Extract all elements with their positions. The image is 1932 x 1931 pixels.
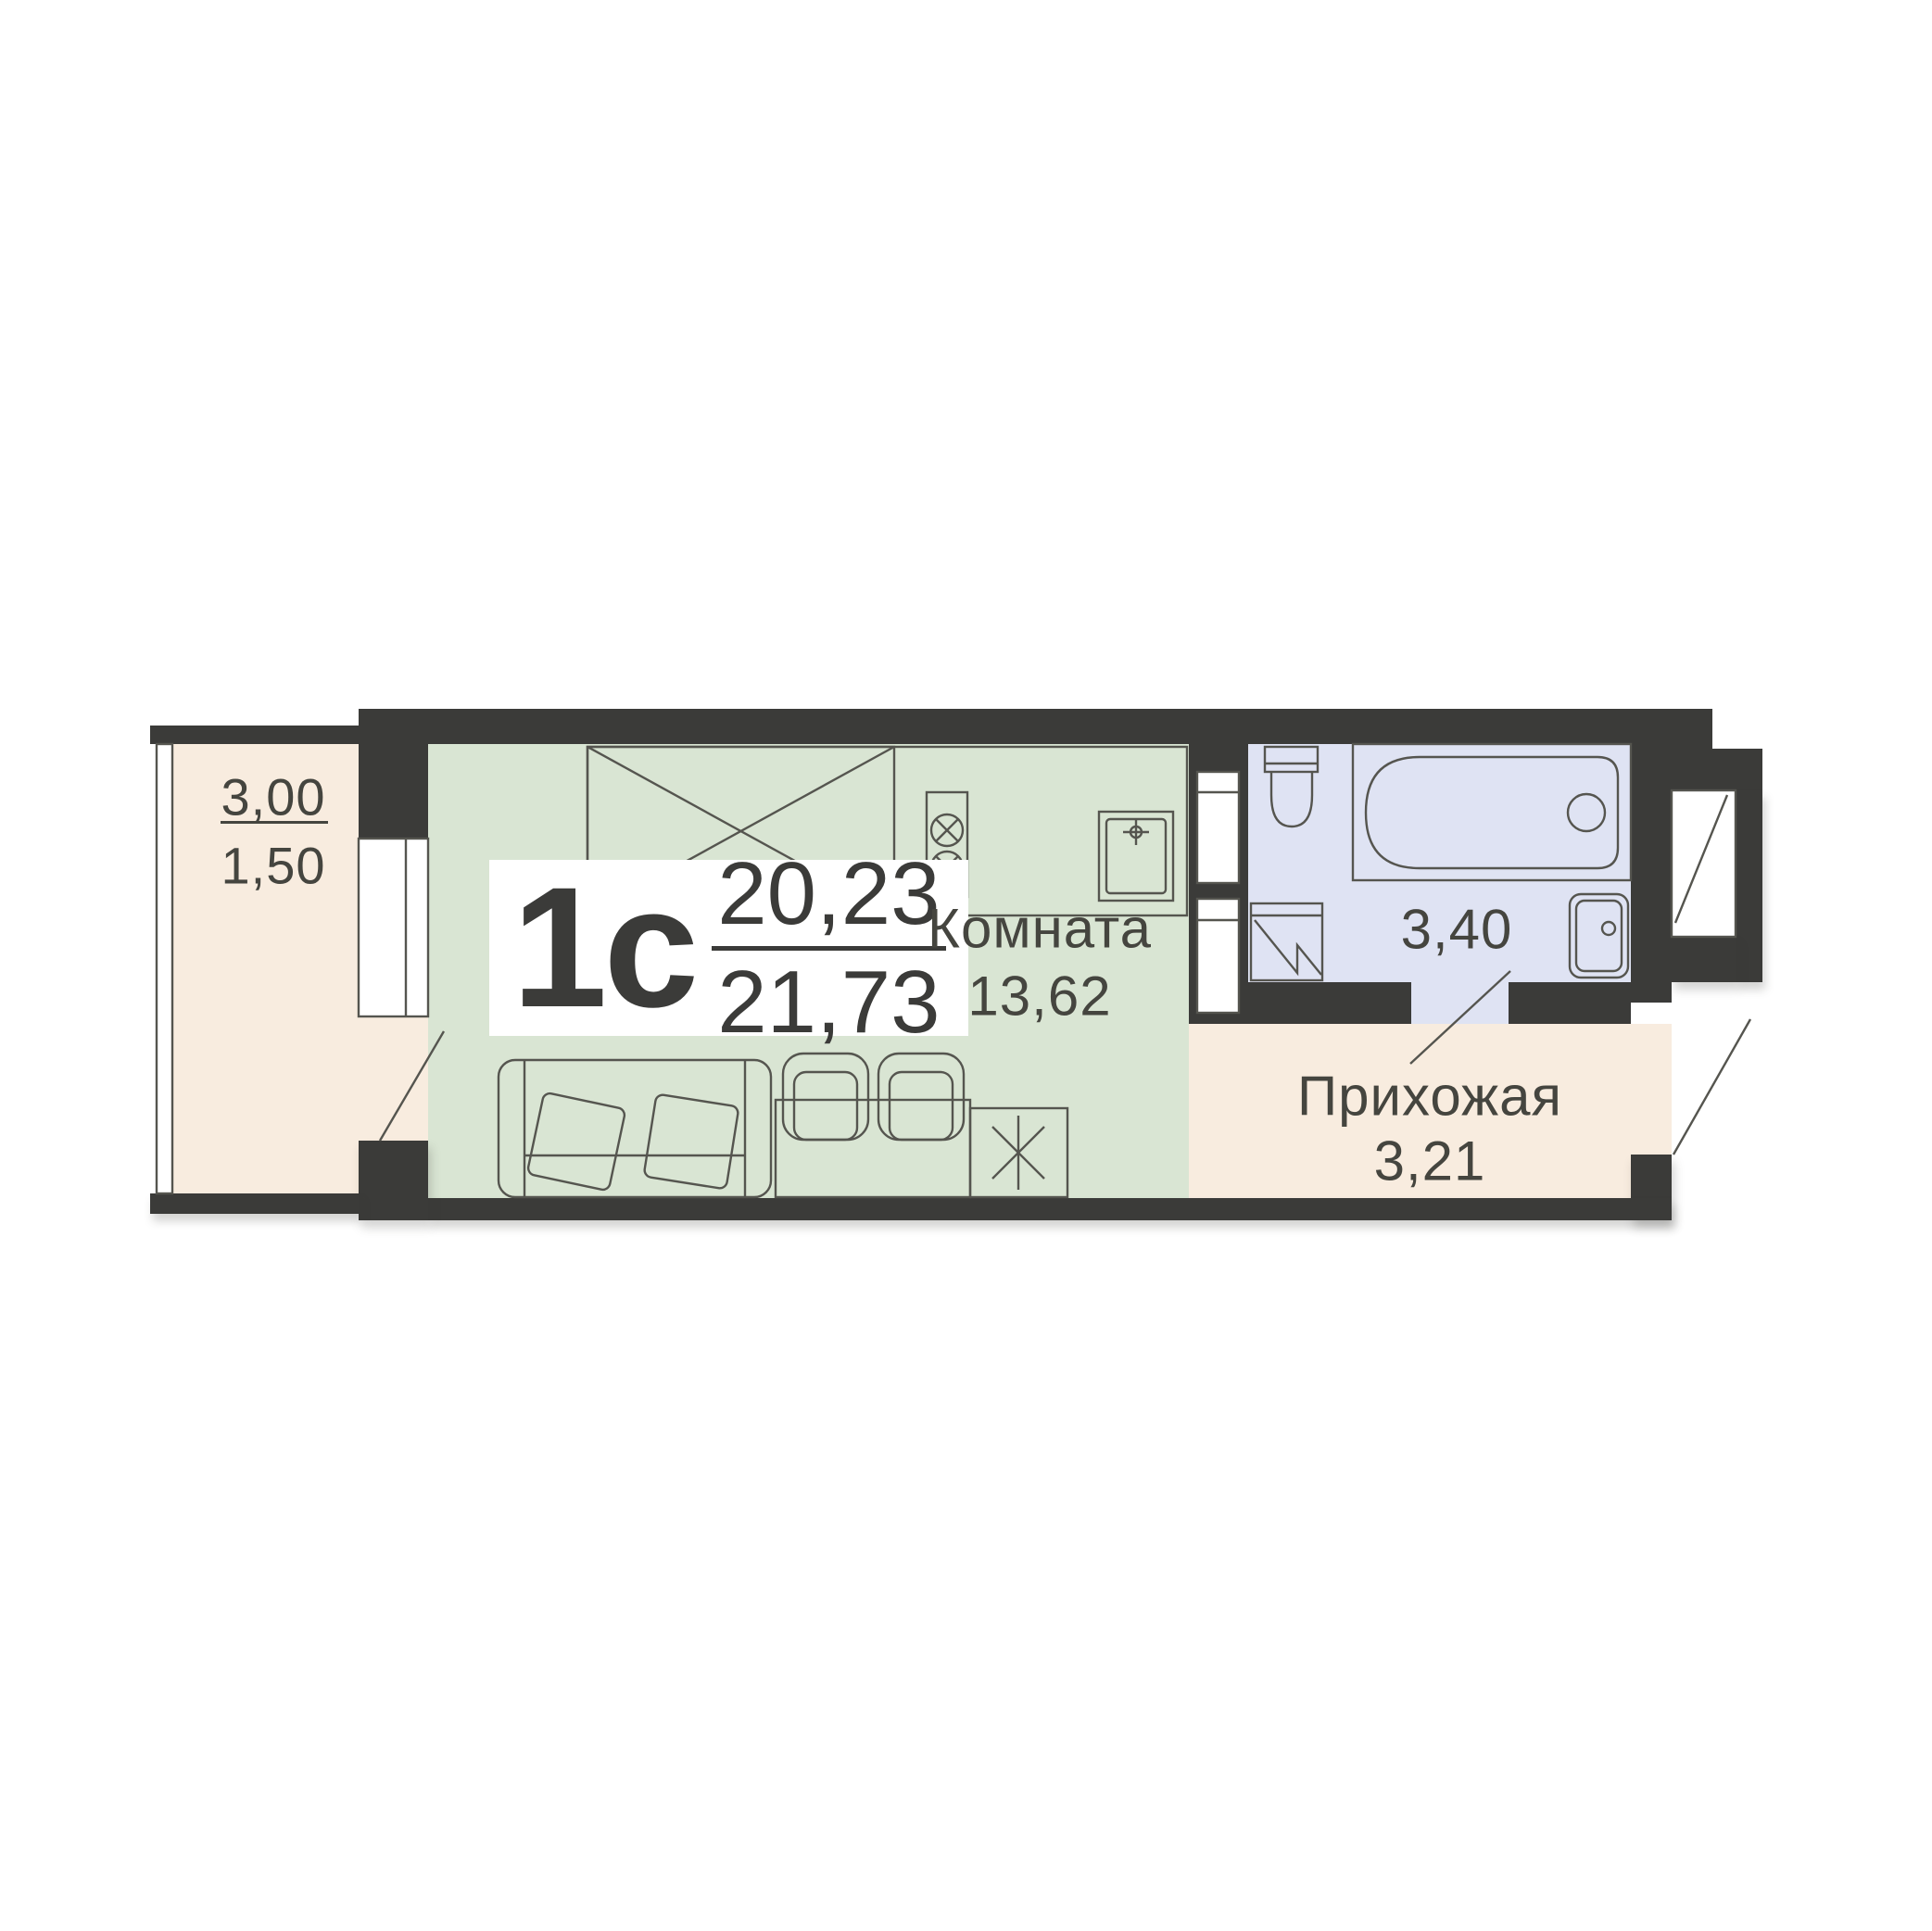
bathtub-icon: [1353, 744, 1631, 880]
kitchen-sink-icon: [1099, 812, 1173, 901]
sofa-icon: [499, 1060, 771, 1197]
niche-door-icon: [1672, 790, 1736, 937]
bathroom-door-leaf-icon: [1410, 971, 1510, 1064]
table-icon: [776, 1100, 970, 1197]
apartment-type-label: 1с: [511, 863, 695, 1034]
living-room-area: 13,62: [967, 965, 1111, 1029]
bathroom-sink-icon: [1570, 894, 1628, 978]
apartment-areas: 20,23 21,73: [712, 850, 945, 1047]
area-living: 21,73: [717, 951, 940, 1047]
toilet-icon: [1265, 747, 1318, 827]
balcony-window-icon: [359, 839, 428, 1016]
vent-shaft-icon: [1197, 899, 1239, 1013]
floor-plan: .ln{stroke:var(--c-line);fill:none;strok…: [0, 0, 1932, 1931]
balcony-area-under: 1,50: [221, 836, 326, 896]
area-total: 20,23: [712, 850, 945, 951]
bathroom-area: 3,40: [1401, 898, 1513, 962]
vent-shaft-icon: [1197, 772, 1239, 883]
hallway-area: 3,21: [1374, 1130, 1486, 1193]
apartment-type-badge: 1с 20,23 21,73: [489, 860, 968, 1036]
hallway-name: Прихожая: [1297, 1065, 1562, 1129]
chair-icon: [878, 1054, 964, 1140]
balcony-glazing-icon: [157, 744, 172, 1193]
balcony-fraction-line: [221, 821, 328, 824]
washing-machine-icon: [1251, 903, 1322, 980]
entrance-door-leaf-icon: [1673, 1019, 1750, 1155]
fridge-icon: [970, 1108, 1067, 1197]
chair-icon: [783, 1054, 868, 1140]
balcony-door-leaf-icon: [380, 1031, 444, 1141]
living-room-name: Комната: [928, 897, 1152, 961]
balcony-area-over: 3,00: [221, 767, 326, 827]
